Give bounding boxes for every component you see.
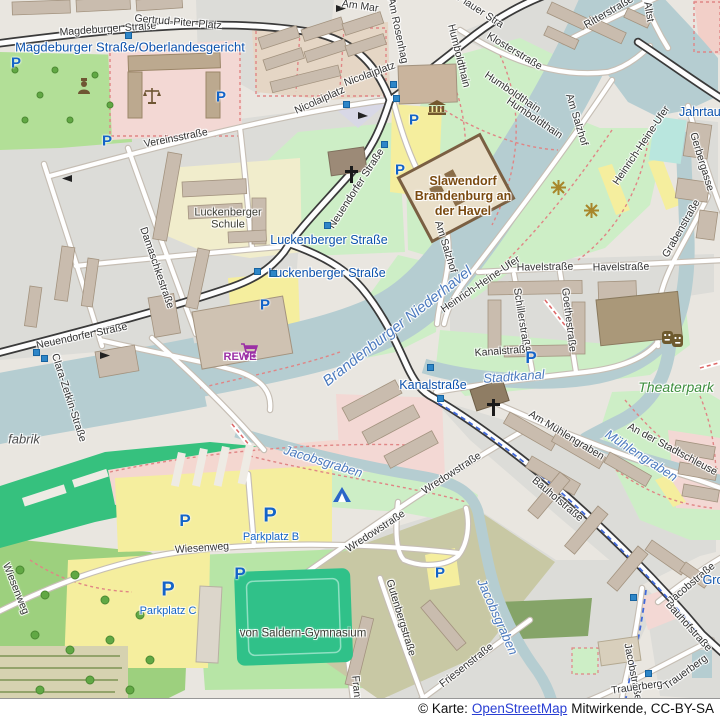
openstreetmap-link[interactable]: OpenStreetMap — [472, 701, 567, 716]
map-canvas[interactable]: Magdeburger StraßeGertrud-Piter-PlatzVer… — [0, 0, 720, 698]
screenshot: Magdeburger StraßeGertrud-Piter-PlatzVer… — [0, 0, 720, 720]
map-base — [0, 0, 720, 698]
attribution-prefix: © Karte: — [418, 701, 468, 716]
attribution-suffix: Mitwirkende, CC-BY-SA — [571, 701, 714, 716]
attribution-bar: © Karte:OpenStreetMapMitwirkende, CC-BY-… — [0, 698, 720, 720]
